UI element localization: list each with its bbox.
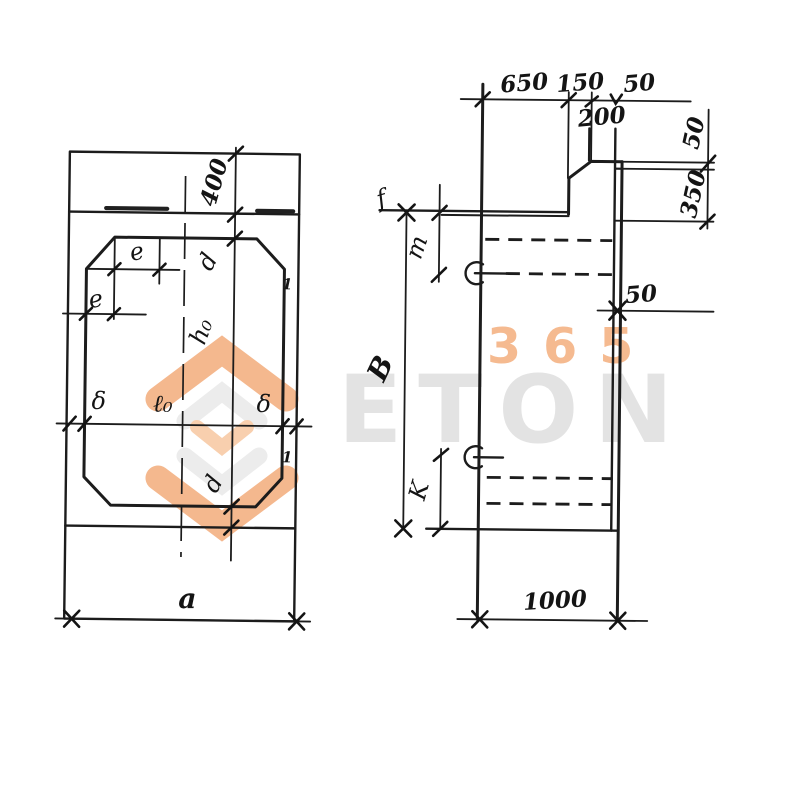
- dim-e-top-label: e: [127, 236, 147, 267]
- dim-l0-label: ℓ₀: [153, 390, 173, 418]
- dim-1000-label: 1000: [522, 585, 588, 616]
- dim-K-label: K: [403, 476, 436, 504]
- rebar-dashed-upper2: [506, 274, 612, 275]
- K-dim-line: [440, 449, 441, 529]
- beton365-logo: [158, 351, 286, 526]
- dim-a-label: a: [178, 582, 197, 615]
- dim-650-label: 650: [499, 68, 549, 99]
- section-mark-1-lower: 1: [282, 448, 293, 466]
- dim-200-label: 200: [576, 101, 627, 132]
- watermark-digits: 365: [487, 318, 655, 375]
- line-smudge-1: [106, 208, 167, 209]
- rebar-dashed-lower1: [487, 477, 613, 478]
- cavity-bottom-line: [426, 529, 618, 531]
- rebar-dashed-lower2: [486, 503, 612, 504]
- logo-chevron-center-icon: [197, 427, 247, 447]
- rebar-dashed-upper: [485, 239, 612, 240]
- dim-400-label: 400: [195, 156, 234, 210]
- rib-dim-line: [598, 310, 714, 311]
- dim-150-label: 150: [555, 68, 605, 99]
- dim-350-label: 350: [675, 168, 712, 221]
- technical-drawing-scan: ETON 365 400 d h₀ d e: [0, 0, 800, 800]
- dim-delta-left-label: δ: [91, 387, 106, 415]
- e-top-dim-line: [86, 269, 179, 270]
- top-dim-line: [461, 99, 691, 101]
- ext-right-notch: [615, 169, 714, 170]
- dim-50-top-label: 50: [622, 69, 656, 98]
- dim-delta-right-label: δ: [256, 390, 271, 418]
- dim-50-mid-label: 50: [624, 280, 658, 309]
- bottom-band-line: [65, 526, 295, 529]
- ext-650: [568, 92, 569, 178]
- ext-right-rib: [614, 221, 713, 222]
- dim-d-top-label: d: [192, 248, 224, 275]
- e-left-dim-line: [63, 314, 146, 315]
- drawing-canvas: ETON 365 400 d h₀ d e: [0, 0, 800, 800]
- e-top-ext-line2: [159, 238, 160, 284]
- ledge-top-line2: [442, 215, 569, 216]
- dim-50-right-top-label: 50: [677, 114, 710, 151]
- m-dim-line: [439, 185, 440, 282]
- section-left-edge: [477, 84, 483, 619]
- dim-m-label: m: [400, 232, 434, 263]
- e-top-ext-line: [114, 237, 115, 319]
- logo-chevron-upper-gray-icon: [185, 392, 259, 421]
- section-mark-1-upper: 1: [282, 275, 293, 293]
